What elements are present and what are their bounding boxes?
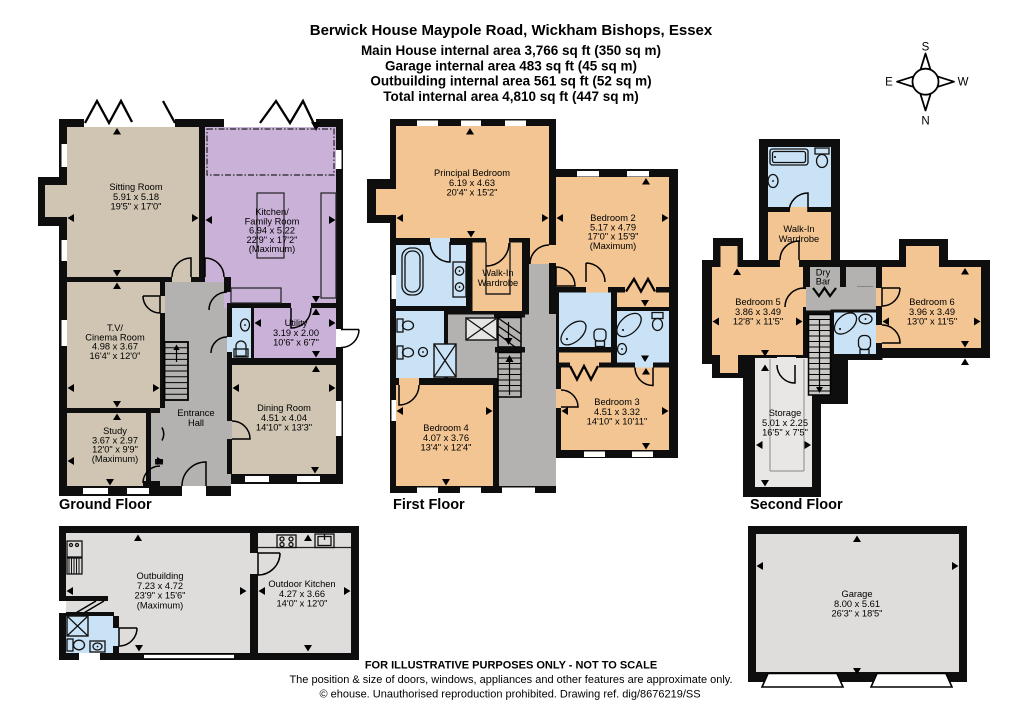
svg-text:W: W xyxy=(958,77,969,89)
svg-text:Total internal area 4,810 sq f: Total internal area 4,810 sq ft (447 sq … xyxy=(383,89,639,104)
svg-text:Bedroom 44.07 x 3.7613'4" x 12: Bedroom 44.07 x 3.7613'4" x 12'4" xyxy=(421,423,472,453)
svg-text:Bedroom 53.86 x 3.4912'8" x 11: Bedroom 53.86 x 3.4912'8" x 11'5" xyxy=(733,297,783,327)
svg-text:Dining Room4.51 x 4.0414'10" x: Dining Room4.51 x 4.0414'10" x 13'3" xyxy=(256,403,312,433)
svg-text:© ehouse. Unauthorised reprodu: © ehouse. Unauthorised reproduction proh… xyxy=(319,689,700,701)
svg-text:Ground Floor: Ground Floor xyxy=(59,497,152,513)
svg-text:FOR ILLUSTRATIVE PURPOSES ONLY: FOR ILLUSTRATIVE PURPOSES ONLY - NOT TO … xyxy=(365,660,657,672)
svg-text:Walk-InWardrobe: Walk-InWardrobe xyxy=(478,268,518,288)
svg-text:The position & size of doors,: The position & size of doors, windows, a… xyxy=(289,674,732,686)
svg-text:Main House internal area 3,766: Main House internal area 3,766 sq ft (35… xyxy=(361,43,661,58)
svg-text:Walk-InWardrobe: Walk-InWardrobe xyxy=(779,224,819,244)
svg-text:DryBar: DryBar xyxy=(816,268,831,287)
svg-text:N: N xyxy=(921,116,929,128)
svg-text:Bedroom 25.17 x 4.7917'0" x 15: Bedroom 25.17 x 4.7917'0" x 15'9"(Maximu… xyxy=(588,213,639,251)
svg-text:Bedroom 34.51 x 3.3214'10" x 1: Bedroom 34.51 x 3.3214'10" x 10'11" xyxy=(587,397,648,427)
svg-text:Garage internal area 483 sq ft: Garage internal area 483 sq ft (45 sq m) xyxy=(385,58,637,73)
svg-text:Second Floor: Second Floor xyxy=(750,497,843,513)
svg-text:Outbuilding internal area 561: Outbuilding internal area 561 sq ft (52 … xyxy=(370,74,651,89)
svg-text:First Floor: First Floor xyxy=(393,497,465,513)
svg-text:Berwick House Maypole Road, Wi: Berwick House Maypole Road, Wickham Bish… xyxy=(310,22,713,39)
svg-text:E: E xyxy=(885,77,893,89)
svg-text:Sitting Room5.91 x 5.1819'5" x: Sitting Room5.91 x 5.1819'5" x 17'0" xyxy=(109,182,162,212)
svg-text:S: S xyxy=(922,42,930,54)
svg-text:Bedroom 63.96 x 3.4913'0" x 11: Bedroom 63.96 x 3.4913'0" x 11'5" xyxy=(907,297,957,327)
svg-text:Storage5.01 x 2.2516'5" x 7'5": Storage5.01 x 2.2516'5" x 7'5" xyxy=(762,408,808,438)
svg-text:Outbuilding7.23 x 4.7223'9" x: Outbuilding7.23 x 4.7223'9" x 15'6"(Maxi… xyxy=(135,571,186,610)
